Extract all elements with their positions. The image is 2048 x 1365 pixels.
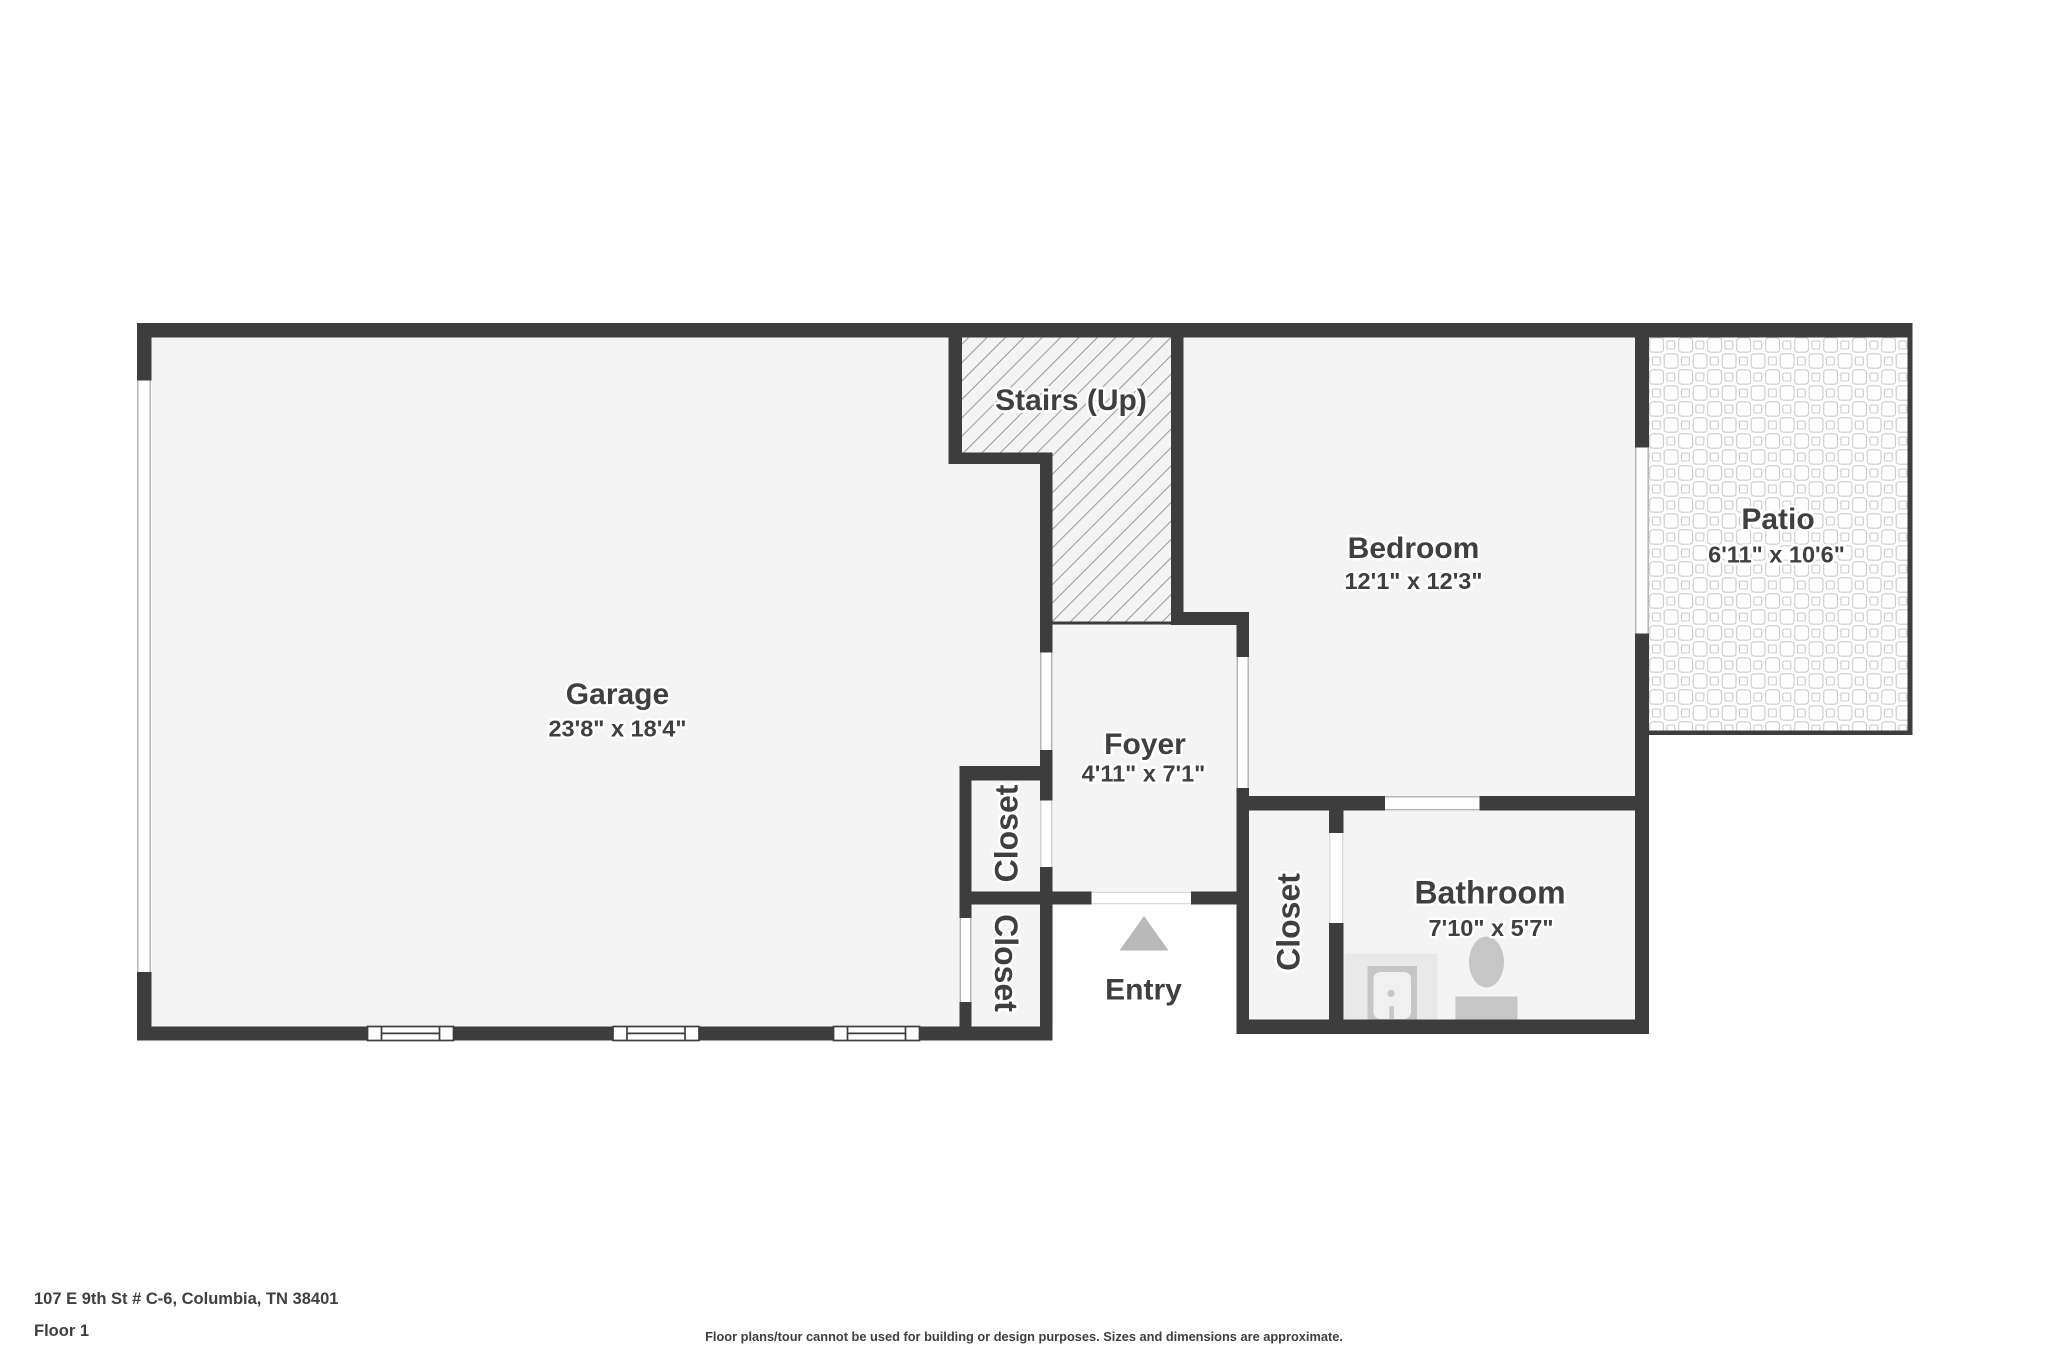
svg-text:Entry: Entry	[1105, 974, 1182, 1007]
svg-text:Closet: Closet	[989, 784, 1025, 882]
svg-text:107 E 9th St # C-6, Columbia,: 107 E 9th St # C-6, Columbia, TN 38401	[34, 1290, 338, 1308]
svg-text:Closet: Closet	[988, 914, 1024, 1012]
svg-text:4'11" x 7'1": 4'11" x 7'1"	[1082, 761, 1206, 787]
svg-text:Foyer: Foyer	[1104, 728, 1186, 761]
svg-text:Bedroom: Bedroom	[1348, 532, 1480, 565]
svg-text:Bathroom: Bathroom	[1414, 875, 1565, 911]
svg-text:Stairs (Up): Stairs (Up)	[995, 384, 1147, 417]
svg-text:Floor 1: Floor 1	[34, 1322, 89, 1340]
svg-text:Patio: Patio	[1741, 503, 1814, 536]
svg-text:Floor plans/tour cannot be use: Floor plans/tour cannot be used for buil…	[705, 1329, 1343, 1344]
svg-text:23'8" x 18'4": 23'8" x 18'4"	[548, 716, 686, 742]
svg-text:Garage: Garage	[566, 678, 669, 711]
svg-text:12'1" x 12'3": 12'1" x 12'3"	[1344, 568, 1482, 594]
svg-text:7'10" x 5'7": 7'10" x 5'7"	[1429, 915, 1554, 941]
svg-text:6'11" x 10'6": 6'11" x 10'6"	[1708, 542, 1845, 568]
svg-text:Closet: Closet	[1271, 873, 1307, 971]
